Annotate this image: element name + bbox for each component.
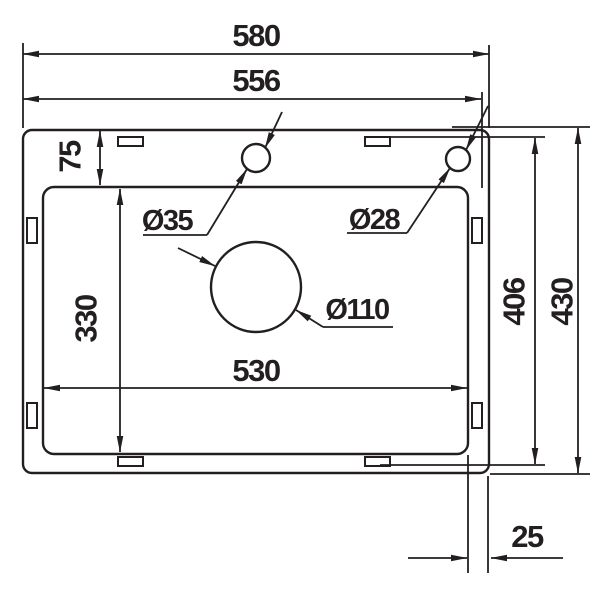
mounting-clip-left-upper bbox=[27, 218, 37, 243]
mounting-clip-top-right bbox=[365, 137, 390, 146]
drain-hole bbox=[211, 242, 301, 332]
sink-bowl-edge bbox=[43, 187, 468, 454]
mounting-clip-right-lower bbox=[472, 403, 482, 428]
dim-top-width: 556 bbox=[23, 63, 482, 188]
small-hole bbox=[446, 147, 470, 171]
dimension-label: 430 bbox=[545, 278, 580, 325]
dim-rim-top: 75 bbox=[53, 131, 101, 185]
mounting-clip-left-lower bbox=[27, 403, 37, 428]
dimension-label: 580 bbox=[232, 18, 279, 53]
dimension-label: 530 bbox=[232, 353, 279, 388]
dimension-label: 330 bbox=[69, 295, 104, 342]
pointer-arrow bbox=[466, 106, 488, 150]
leader-line bbox=[207, 169, 247, 235]
hole-diameter-label: Ø35 bbox=[142, 205, 194, 237]
mounting-clip-right-upper bbox=[472, 218, 482, 243]
leader-line bbox=[296, 310, 323, 327]
mounting-clip-bottom-left bbox=[118, 457, 143, 466]
hole-diameter-label: Ø110 bbox=[325, 294, 389, 326]
sink-dimension-drawing: 580 556 75 330 530 406 430 bbox=[0, 0, 600, 600]
dimension-label: 25 bbox=[511, 519, 544, 554]
dimension-label: 75 bbox=[53, 140, 88, 173]
mounting-clip-top-left bbox=[118, 137, 143, 146]
dimension-label: 406 bbox=[497, 277, 532, 325]
hole-diameter-label: Ø28 bbox=[349, 204, 401, 236]
pointer-arrow bbox=[178, 248, 215, 266]
dim-bowl-width: 530 bbox=[44, 353, 467, 388]
dim-bowl-length: 330 bbox=[69, 189, 121, 452]
dimension-label: 556 bbox=[232, 63, 280, 98]
leader-line bbox=[407, 168, 450, 233]
